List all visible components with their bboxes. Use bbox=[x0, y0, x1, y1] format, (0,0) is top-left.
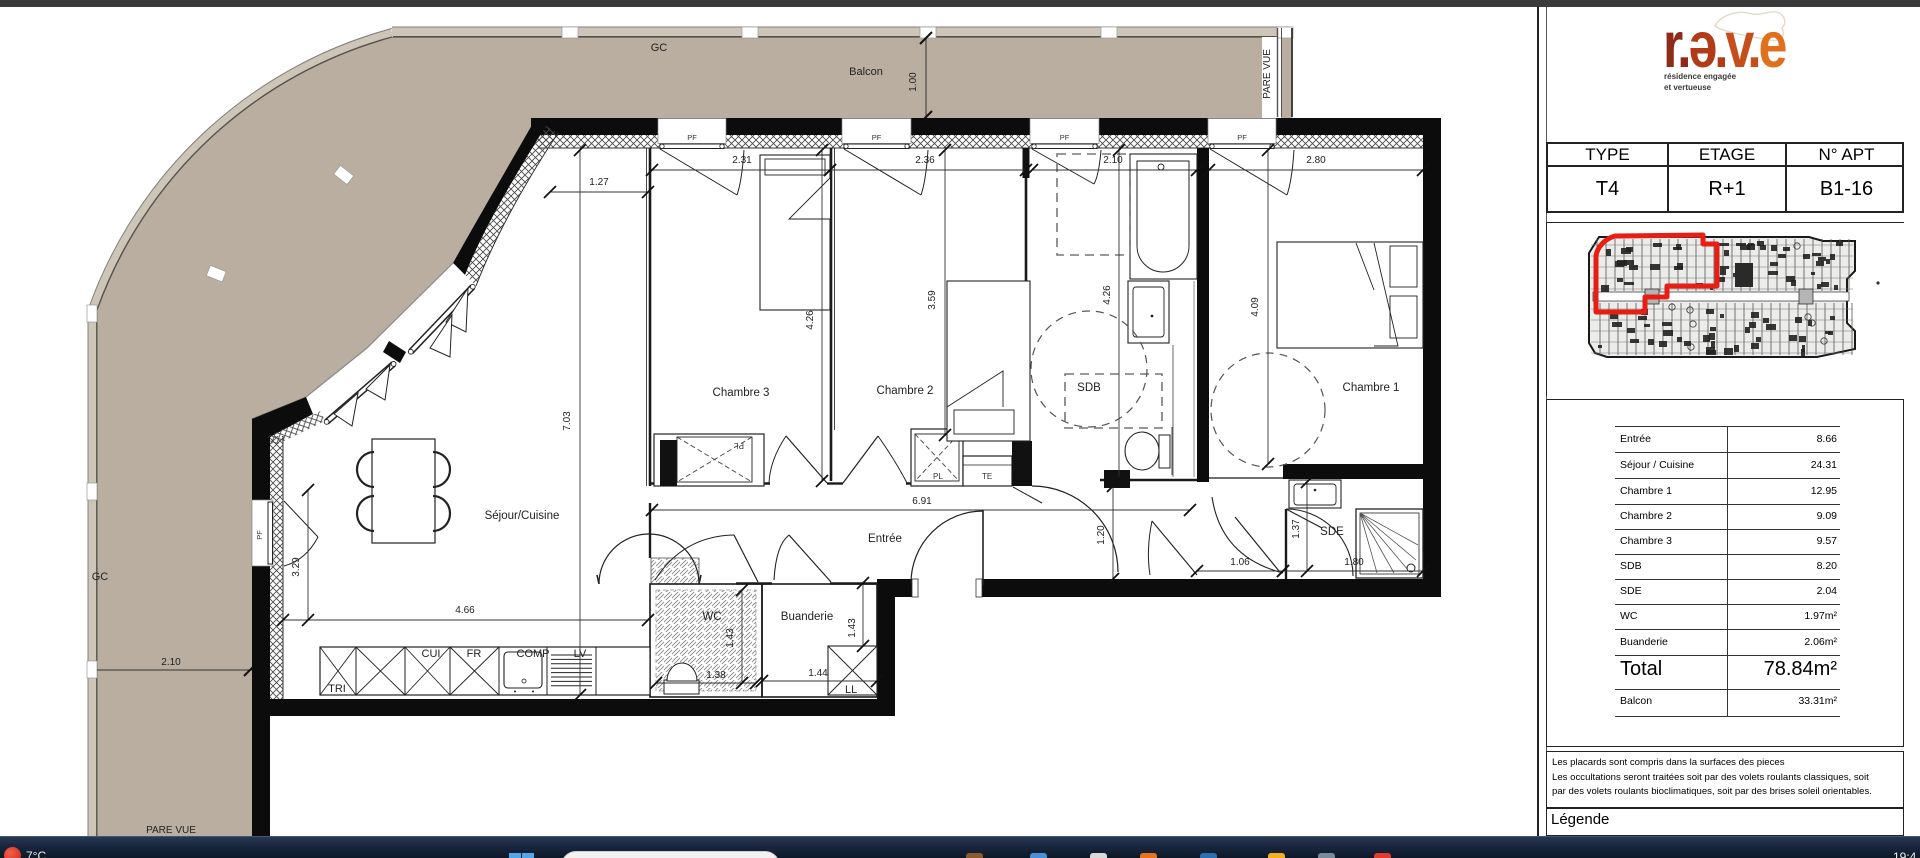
svg-text:PL: PL bbox=[933, 472, 943, 481]
svg-text:1.37: 1.37 bbox=[1291, 519, 1302, 539]
svg-text:1.80: 1.80 bbox=[1344, 557, 1364, 568]
svg-text:2.36: 2.36 bbox=[915, 155, 935, 166]
svg-text:PF: PF bbox=[255, 530, 264, 540]
svg-text:Entrée: Entrée bbox=[868, 533, 902, 545]
svg-text:PARE VUE: PARE VUE bbox=[146, 825, 196, 836]
svg-text:SDB: SDB bbox=[1077, 382, 1101, 394]
svg-text:4.26: 4.26 bbox=[1102, 285, 1113, 305]
svg-text:4.26: 4.26 bbox=[805, 310, 816, 330]
svg-text:6.91: 6.91 bbox=[912, 496, 932, 507]
svg-text:PF: PF bbox=[1237, 133, 1247, 142]
svg-text:2.31: 2.31 bbox=[732, 155, 752, 166]
svg-text:et vertueuse: et vertueuse bbox=[1664, 83, 1712, 92]
svg-text:GC: GC bbox=[92, 571, 109, 583]
svg-text:COMP: COMP bbox=[517, 648, 550, 660]
svg-text:PL: PL bbox=[734, 441, 744, 450]
svg-text:SDE: SDE bbox=[1320, 526, 1344, 538]
svg-text:PF: PF bbox=[687, 133, 697, 142]
svg-text:2.80: 2.80 bbox=[1306, 155, 1326, 166]
svg-text:2.10: 2.10 bbox=[1103, 155, 1123, 166]
svg-text:Chambre 2: Chambre 2 bbox=[877, 385, 934, 397]
svg-text:4.66: 4.66 bbox=[455, 605, 475, 616]
svg-text:TE: TE bbox=[982, 472, 992, 481]
svg-text:7.03: 7.03 bbox=[562, 411, 573, 431]
svg-text:PF: PF bbox=[872, 133, 882, 142]
svg-text:1.00: 1.00 bbox=[908, 72, 919, 92]
svg-text:3.29: 3.29 bbox=[291, 557, 302, 577]
svg-text:LL: LL bbox=[845, 684, 857, 696]
svg-text:1.27: 1.27 bbox=[589, 177, 609, 188]
svg-text:1.20: 1.20 bbox=[1096, 525, 1107, 545]
svg-text:1.06: 1.06 bbox=[1230, 557, 1250, 568]
svg-text:Chambre 1: Chambre 1 bbox=[1343, 382, 1400, 394]
svg-text:Chambre 3: Chambre 3 bbox=[713, 387, 770, 399]
svg-text:CUI: CUI bbox=[422, 648, 441, 660]
svg-text:TRI: TRI bbox=[328, 683, 346, 695]
svg-text:1.43: 1.43 bbox=[725, 628, 736, 648]
svg-text:1.43: 1.43 bbox=[847, 618, 858, 638]
svg-text:4.09: 4.09 bbox=[1250, 297, 1261, 317]
svg-text:WC: WC bbox=[702, 611, 721, 623]
svg-text:1.38: 1.38 bbox=[706, 670, 726, 681]
svg-text:1.44: 1.44 bbox=[808, 668, 828, 679]
svg-text:2.10: 2.10 bbox=[161, 657, 181, 668]
svg-text:GC: GC bbox=[651, 42, 668, 54]
svg-text:Séjour/Cuisine: Séjour/Cuisine bbox=[485, 510, 560, 522]
svg-text:Buanderie: Buanderie bbox=[781, 611, 833, 623]
svg-text:r.ǝ.v.e: r.ǝ.v.e bbox=[1663, 10, 1786, 82]
svg-text:FR: FR bbox=[467, 648, 482, 660]
svg-text:PF: PF bbox=[1060, 133, 1070, 142]
svg-text:PARE VUE: PARE VUE bbox=[1262, 49, 1273, 99]
svg-text:résidence engagée: résidence engagée bbox=[1664, 72, 1737, 81]
svg-text:3.59: 3.59 bbox=[927, 290, 938, 310]
svg-text:Balcon: Balcon bbox=[849, 66, 883, 78]
